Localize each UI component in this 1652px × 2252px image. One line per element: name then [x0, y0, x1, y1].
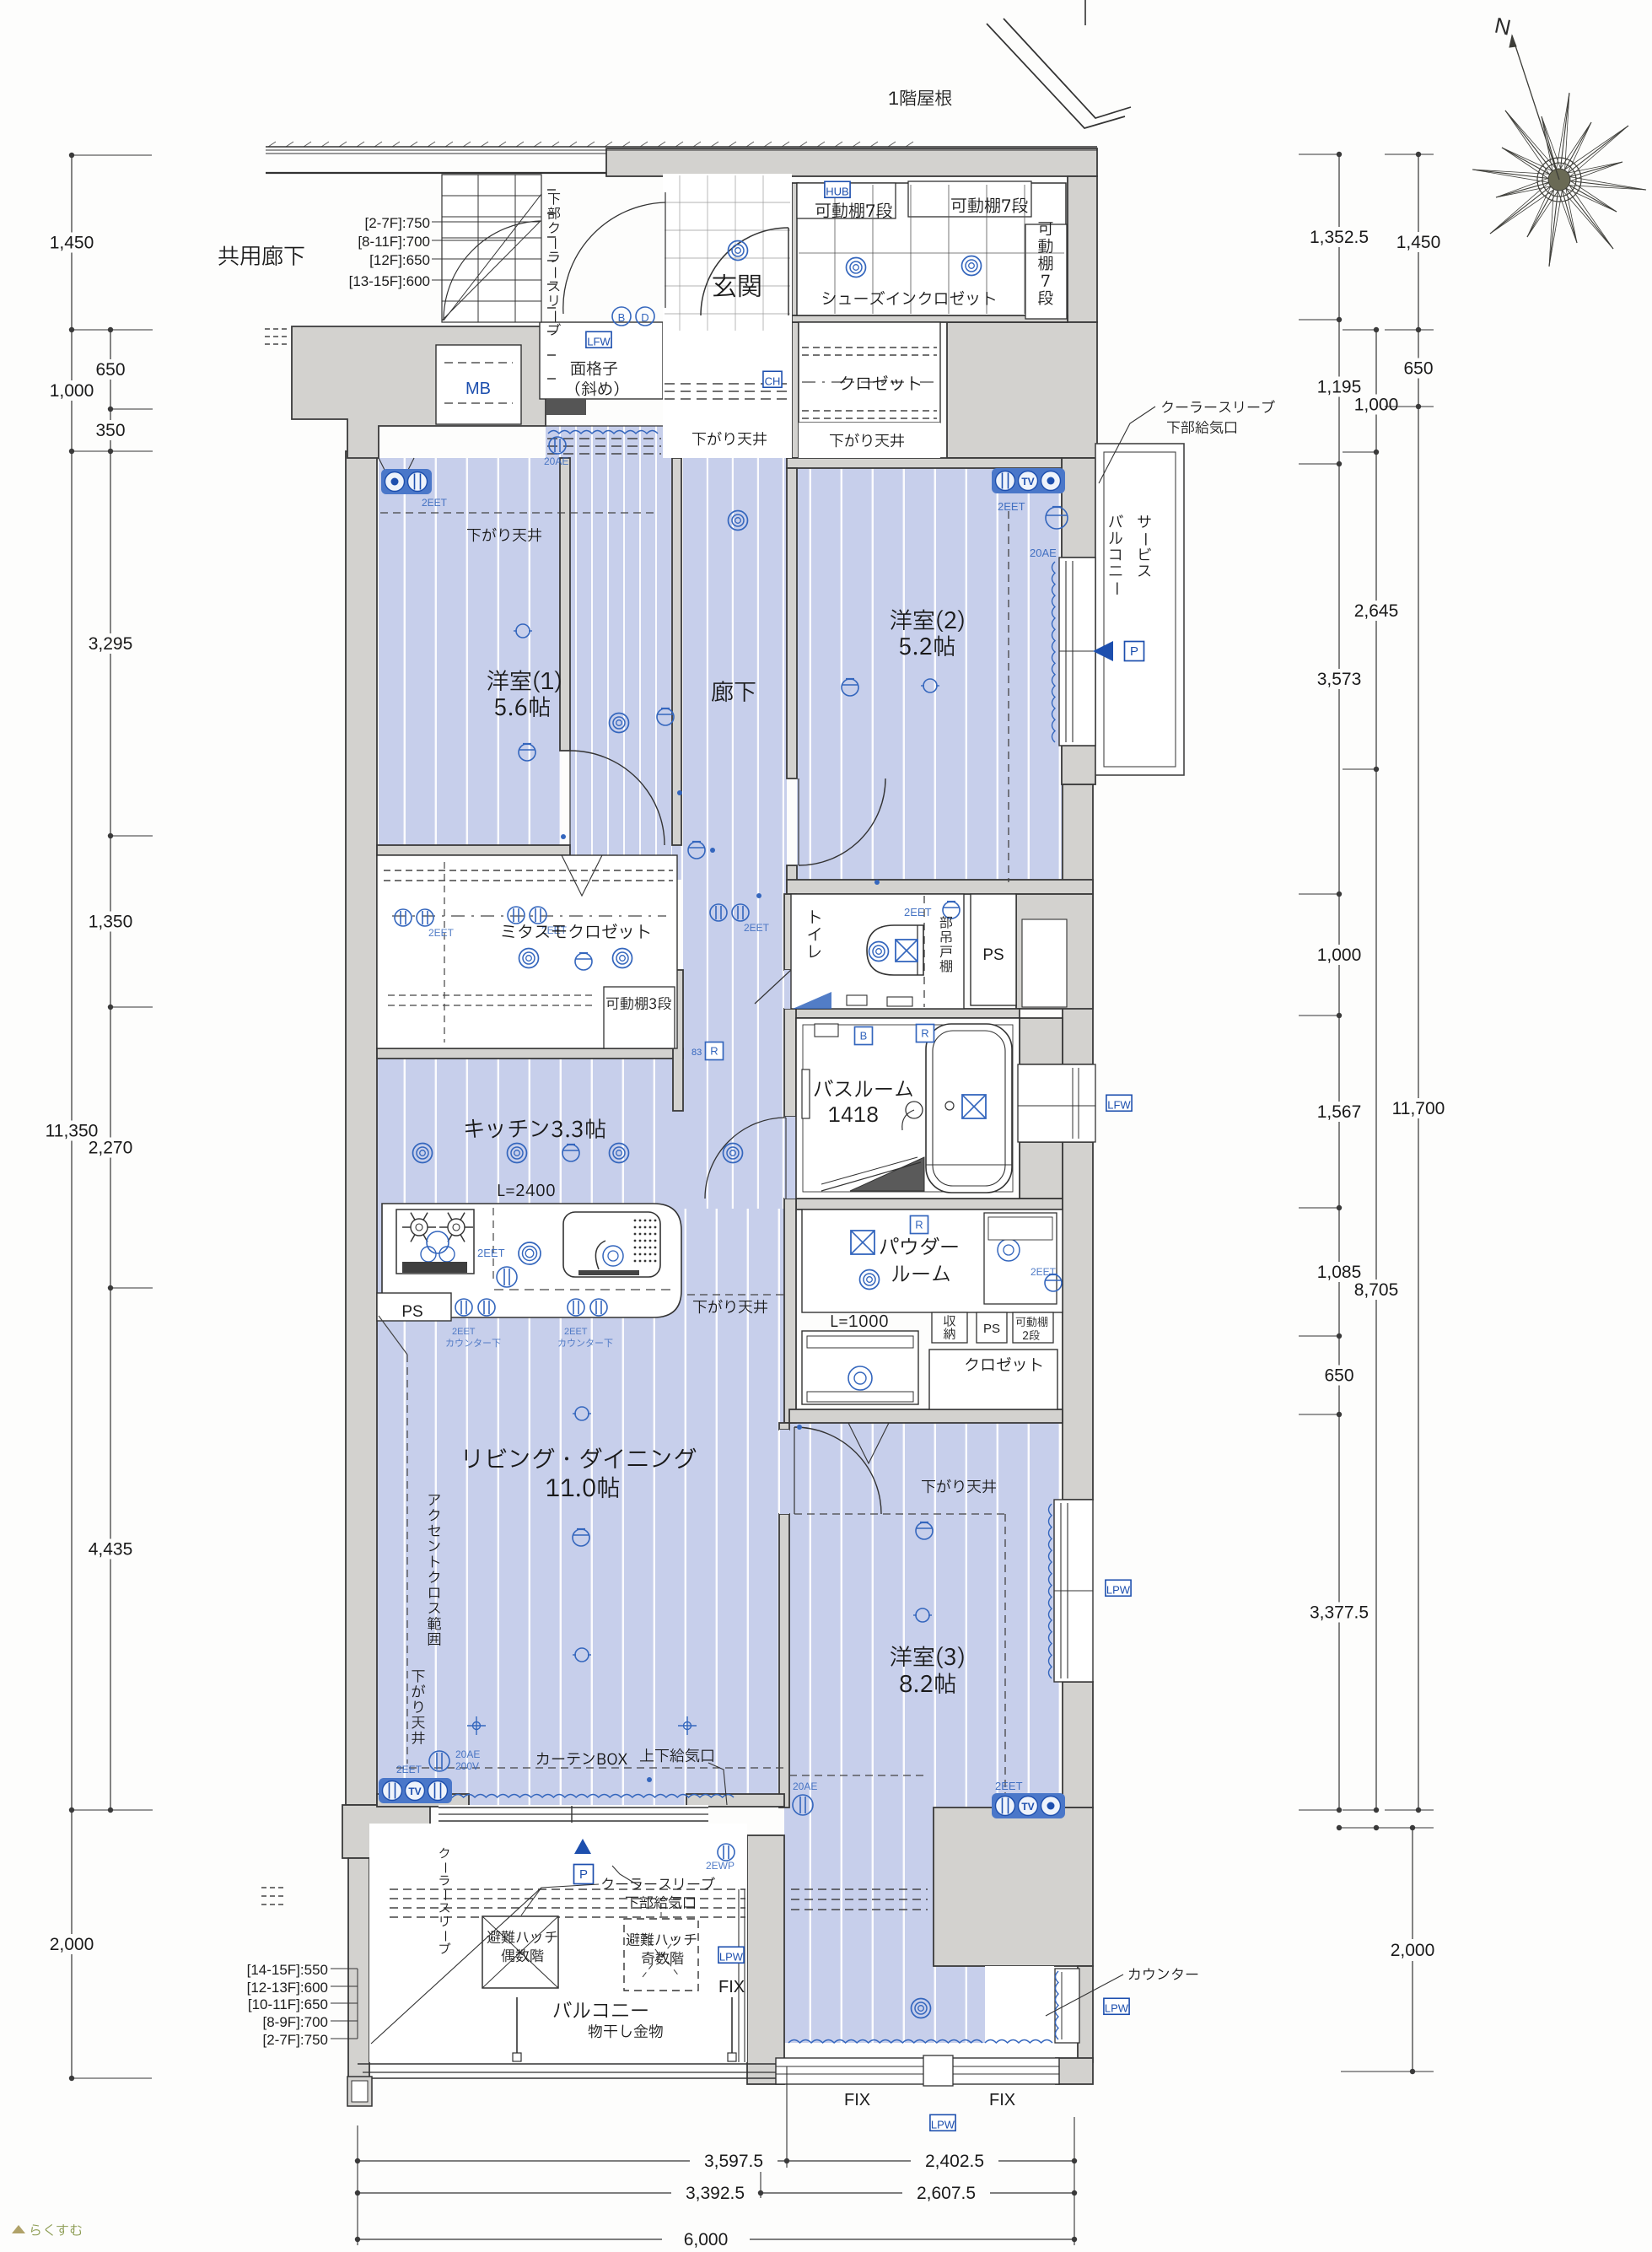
svg-text:[8-9F]:700: [8-9F]:700	[263, 2014, 329, 2030]
svg-text:[12-13F]:600: [12-13F]:600	[247, 1980, 328, 1996]
svg-text:LPW: LPW	[719, 1951, 744, 1964]
svg-text:2EET: 2EET	[1030, 1266, 1057, 1278]
svg-text:1,450: 1,450	[50, 234, 94, 253]
svg-text:83: 83	[691, 1048, 702, 1058]
svg-text:650: 650	[1324, 1366, 1353, 1386]
svg-text:2EET: 2EET	[564, 1327, 588, 1337]
svg-text:PS: PS	[401, 1303, 422, 1321]
svg-text:LPW: LPW	[1106, 1584, 1131, 1597]
svg-text:3,295: 3,295	[89, 634, 133, 654]
svg-text:3,392.5: 3,392.5	[686, 2184, 745, 2203]
svg-text:B: B	[860, 1029, 868, 1042]
svg-text:LPW: LPW	[1105, 2002, 1129, 2015]
svg-text:3,597.5: 3,597.5	[704, 2152, 763, 2171]
svg-text:CH: CH	[765, 375, 781, 388]
svg-text:1,352.5: 1,352.5	[1310, 228, 1369, 247]
svg-text:カウンター下: カウンター下	[445, 1338, 501, 1349]
svg-text:[2-7F]:750: [2-7F]:750	[365, 215, 431, 231]
svg-text:LFW: LFW	[1107, 1099, 1131, 1112]
svg-text:2,000: 2,000	[50, 1935, 94, 1954]
svg-text:2EWP: 2EWP	[706, 1860, 735, 1872]
svg-text:[8-11F]:700: [8-11F]:700	[358, 234, 430, 250]
svg-text:MB: MB	[465, 380, 491, 398]
svg-text:LFW: LFW	[587, 336, 611, 348]
svg-text:2EET: 2EET	[422, 497, 448, 509]
svg-text:20AE: 20AE	[793, 1781, 817, 1792]
svg-text:2EET: 2EET	[477, 1247, 505, 1259]
svg-text:1,000: 1,000	[1317, 946, 1362, 965]
svg-text:11,700: 11,700	[1392, 1099, 1445, 1118]
svg-text:TV: TV	[1021, 1801, 1034, 1813]
svg-text:[10-11F]:650: [10-11F]:650	[248, 1996, 328, 2012]
svg-text:2,607.5: 2,607.5	[917, 2184, 976, 2203]
svg-text:2EET: 2EET	[995, 1780, 1023, 1792]
svg-text:PS: PS	[983, 1322, 1000, 1336]
svg-text:20AE: 20AE	[1030, 547, 1057, 559]
svg-text:R: R	[921, 1026, 928, 1039]
svg-text:2,270: 2,270	[89, 1139, 133, 1158]
svg-text:650: 650	[1403, 359, 1433, 379]
svg-text:P: P	[1130, 644, 1138, 659]
svg-text:P: P	[579, 1867, 588, 1882]
svg-text:R: R	[915, 1218, 923, 1231]
svg-text:1,085: 1,085	[1317, 1263, 1362, 1282]
svg-text:FIX: FIX	[844, 2091, 870, 2109]
svg-text:1,350: 1,350	[89, 913, 133, 932]
svg-text:2,000: 2,000	[1391, 1941, 1435, 1960]
svg-text:20AE: 20AE	[455, 1748, 480, 1760]
svg-text:[2-7F]:750: [2-7F]:750	[263, 2032, 329, 2048]
svg-text:2EET: 2EET	[998, 500, 1025, 513]
svg-text:LPW: LPW	[931, 2119, 955, 2131]
svg-text:1,450: 1,450	[1396, 233, 1441, 252]
svg-text:D: D	[641, 311, 648, 324]
svg-text:650: 650	[95, 360, 125, 380]
svg-text:2EET: 2EET	[744, 922, 770, 934]
svg-text:20AE: 20AE	[544, 455, 568, 467]
svg-text:1,000: 1,000	[50, 381, 94, 401]
svg-text:3,377.5: 3,377.5	[1310, 1603, 1369, 1623]
svg-text:2,402.5: 2,402.5	[925, 2152, 984, 2171]
svg-text:6,000: 6,000	[684, 2230, 729, 2249]
svg-text:2EET: 2EET	[428, 927, 455, 939]
svg-text:350: 350	[95, 421, 125, 440]
svg-text:200V: 200V	[455, 1760, 479, 1772]
svg-text:HUB: HUB	[826, 186, 848, 198]
svg-text:3,573: 3,573	[1317, 670, 1362, 689]
svg-text:カウンター下: カウンター下	[557, 1338, 613, 1349]
svg-text:1,567: 1,567	[1317, 1102, 1362, 1122]
svg-text:PS: PS	[982, 946, 1004, 964]
svg-text:2EET: 2EET	[904, 906, 932, 919]
svg-text:4,435: 4,435	[89, 1540, 133, 1560]
svg-text:[13-15F]:600: [13-15F]:600	[349, 273, 430, 289]
svg-text:TV: TV	[1021, 476, 1034, 488]
svg-text:1,195: 1,195	[1317, 378, 1362, 397]
svg-text:FIX: FIX	[989, 2091, 1015, 2109]
svg-text:B: B	[618, 311, 626, 324]
svg-text:TV: TV	[408, 1786, 421, 1797]
svg-text:R: R	[710, 1044, 718, 1057]
svg-text:2EET: 2EET	[452, 1327, 476, 1337]
svg-text:8,705: 8,705	[1354, 1280, 1399, 1300]
svg-text:2EET: 2EET	[396, 1764, 422, 1775]
svg-text:1,000: 1,000	[1354, 396, 1399, 415]
svg-text:FIX: FIX	[718, 1978, 745, 1996]
svg-text:[12F]:650: [12F]:650	[369, 252, 430, 268]
svg-text:[14-15F]:550: [14-15F]:550	[247, 1962, 328, 1978]
svg-text:2,645: 2,645	[1354, 601, 1399, 621]
